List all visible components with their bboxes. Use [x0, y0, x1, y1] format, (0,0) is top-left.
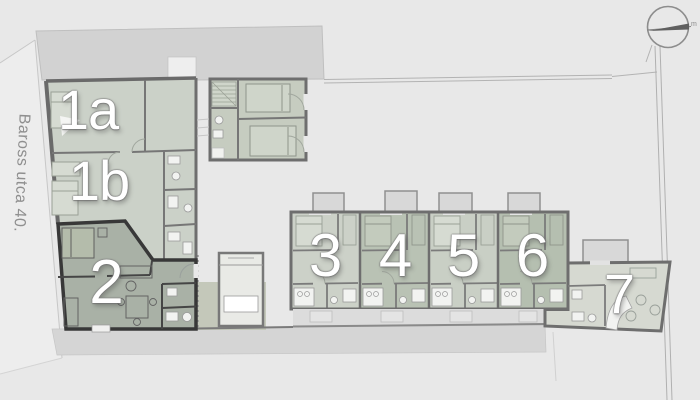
unit-label-1b[interactable]: 1b: [69, 153, 129, 209]
path-steps: [197, 119, 209, 136]
neighbor-building: [36, 26, 324, 80]
unit-label-6[interactable]: 6: [516, 226, 548, 286]
compass-scale-label: m: [691, 21, 697, 28]
unit-label-3[interactable]: 3: [309, 226, 341, 286]
small-building: [197, 79, 309, 160]
unit-label-2[interactable]: 2: [89, 252, 122, 314]
unit-label-5[interactable]: 5: [447, 226, 479, 286]
row-sidewalk: [293, 309, 545, 327]
unit-label-7[interactable]: 7: [604, 266, 634, 322]
sidewalk-band: [52, 325, 556, 381]
unit-label-4[interactable]: 4: [379, 226, 411, 286]
terrace-bumps: [313, 191, 540, 212]
courtyard-structure: [196, 253, 293, 330]
site-plan: Baross utca 40. m 1a 1b 2 3 4 5 6 7: [0, 0, 700, 400]
north-arrow-icon: [647, 7, 691, 48]
unit-label-1a[interactable]: 1a: [58, 82, 118, 138]
